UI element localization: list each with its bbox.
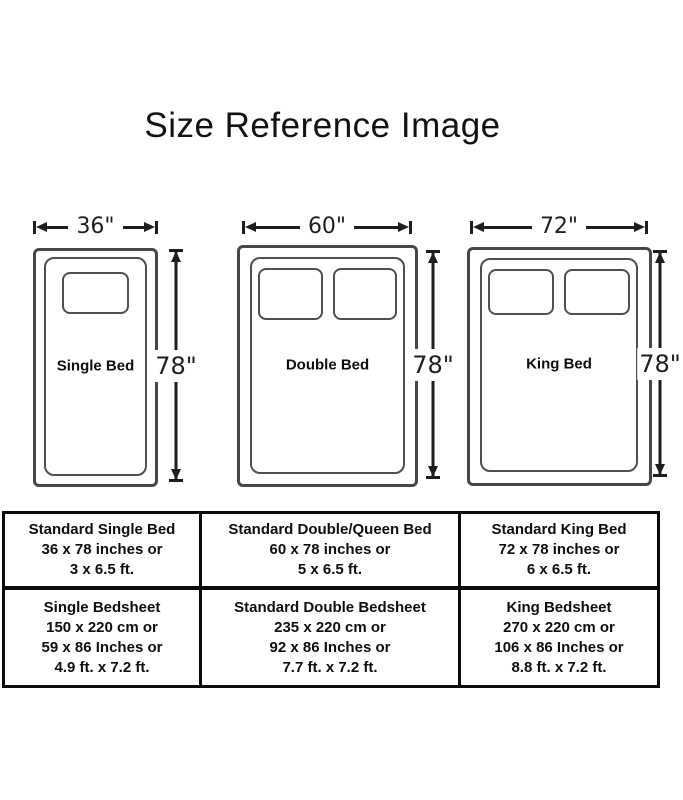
- cell-line: Standard Double Bedsheet: [202, 598, 458, 618]
- cell-line: 8.8 ft. x 7.2 ft.: [461, 658, 657, 678]
- pillow: [62, 272, 130, 314]
- width-dimension-arrow: 36": [33, 215, 158, 239]
- bed-name-label: King Bed: [482, 356, 636, 373]
- cell-line: 270 x 220 cm or: [461, 618, 657, 638]
- arrowhead-right-icon: [144, 222, 155, 232]
- height-dimension-arrow: 78": [650, 250, 670, 477]
- width-dimension-arrow: 72": [470, 215, 648, 239]
- height-label: 78": [153, 350, 199, 382]
- arrowhead-left-icon: [245, 222, 256, 232]
- mattress-outline: King Bed: [480, 258, 638, 472]
- arrow-endbar: [645, 221, 648, 234]
- cell-line: King Bedsheet: [461, 598, 657, 618]
- arrowhead-left-icon: [473, 222, 484, 232]
- table-cell-king-bed: Standard King Bed 72 x 78 inches or 6 x …: [461, 514, 657, 590]
- spec-table: Standard Single Bed 36 x 78 inches or 3 …: [2, 511, 660, 688]
- cell-line: 92 x 86 Inches or: [202, 638, 458, 658]
- cell-line: Standard Double/Queen Bed: [202, 520, 458, 540]
- width-label: 36": [68, 216, 122, 238]
- cell-line: 36 x 78 inches or: [5, 540, 199, 560]
- mattress-outline: Single Bed: [44, 257, 147, 476]
- cell-line: 5 x 6.5 ft.: [202, 560, 458, 580]
- arrow-endbar: [409, 221, 412, 234]
- arrowhead-up-icon: [655, 252, 665, 263]
- size-reference-page: Size Reference Image 36" Single Bed: [0, 0, 683, 800]
- bed-diagram-double: 60" Double Bed 78": [232, 213, 442, 489]
- arrow-endbar: [169, 479, 183, 482]
- dimension-line: [47, 226, 68, 229]
- pillow-row: [46, 272, 145, 314]
- bed-diagram-single: 36" Single Bed 78": [28, 213, 198, 489]
- arrowhead-up-icon: [428, 252, 438, 263]
- table-cell-single-bedsheet: Single Bedsheet 150 x 220 cm or 59 x 86 …: [5, 590, 202, 685]
- bed-outline: King Bed: [467, 247, 652, 486]
- pillow: [564, 269, 630, 315]
- dimension-line: [586, 226, 634, 229]
- width-label: 72": [532, 216, 586, 238]
- cell-line: 59 x 86 Inches or: [5, 638, 199, 658]
- table-cell-double-bedsheet: Standard Double Bedsheet 235 x 220 cm or…: [202, 590, 461, 685]
- cell-line: 6 x 6.5 ft.: [461, 560, 657, 580]
- cell-line: 60 x 78 inches or: [202, 540, 458, 560]
- width-dimension-arrow: 60": [242, 215, 412, 239]
- arrow-endbar: [426, 476, 440, 479]
- cell-line: 4.9 ft. x 7.2 ft.: [5, 658, 199, 678]
- arrowhead-up-icon: [171, 251, 181, 262]
- table-cell-single-bed: Standard Single Bed 36 x 78 inches or 3 …: [5, 514, 202, 590]
- arrow-endbar: [653, 474, 667, 477]
- table-cell-double-bed: Standard Double/Queen Bed 60 x 78 inches…: [202, 514, 461, 590]
- cell-line: 3 x 6.5 ft.: [5, 560, 199, 580]
- cell-line: Single Bedsheet: [5, 598, 199, 618]
- height-label: 78": [637, 348, 683, 380]
- pillow: [333, 268, 398, 320]
- arrowhead-right-icon: [634, 222, 645, 232]
- bed-name-label: Double Bed: [252, 356, 403, 373]
- cell-line: Standard King Bed: [461, 520, 657, 540]
- cell-line: 150 x 220 cm or: [5, 618, 199, 638]
- bed-outline: Single Bed: [33, 248, 158, 487]
- width-label: 60": [300, 216, 354, 238]
- cell-line: 72 x 78 inches or: [461, 540, 657, 560]
- dimension-line: [256, 226, 300, 229]
- height-dimension-arrow: 78": [166, 249, 186, 482]
- arrowhead-left-icon: [36, 222, 47, 232]
- cell-line: 235 x 220 cm or: [202, 618, 458, 638]
- arrow-endbar: [155, 221, 158, 234]
- mattress-outline: Double Bed: [250, 257, 405, 474]
- pillow: [488, 269, 554, 315]
- bed-name-label: Single Bed: [46, 357, 145, 374]
- cell-line: 106 x 86 Inches or: [461, 638, 657, 658]
- bed-diagram-king: 72" King Bed 78": [460, 213, 683, 489]
- table-cell-king-bedsheet: King Bedsheet 270 x 220 cm or 106 x 86 I…: [461, 590, 657, 685]
- dimension-line: [484, 226, 532, 229]
- cell-line: Standard Single Bed: [5, 520, 199, 540]
- bed-outline: Double Bed: [237, 245, 418, 487]
- cell-line: 7.7 ft. x 7.2 ft.: [202, 658, 458, 678]
- pillow: [258, 268, 323, 320]
- page-title: Size Reference Image: [0, 106, 664, 146]
- arrowhead-right-icon: [398, 222, 409, 232]
- dimension-line: [123, 226, 144, 229]
- height-label: 78": [410, 349, 456, 381]
- pillow-row: [252, 268, 403, 320]
- pillow-row: [482, 269, 636, 315]
- height-dimension-arrow: 78": [423, 250, 443, 479]
- dimension-line: [354, 226, 398, 229]
